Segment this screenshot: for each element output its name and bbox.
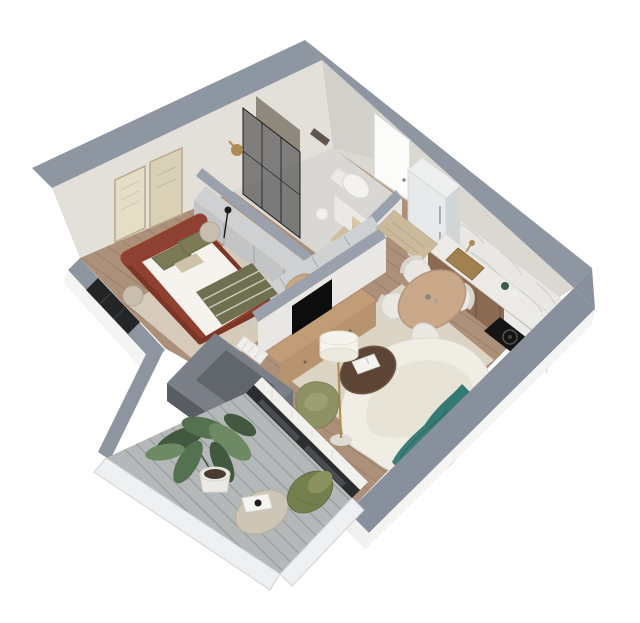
bottle-white	[511, 290, 517, 296]
door-handle	[402, 178, 406, 182]
bottle-green	[501, 282, 509, 290]
nightstand-right	[200, 222, 220, 242]
nightstand-left	[123, 286, 143, 306]
waste-bin	[316, 208, 328, 220]
cup	[255, 500, 262, 507]
art-frame-right	[150, 148, 182, 228]
art-frame-left	[115, 166, 145, 242]
floor-plan-render	[0, 0, 640, 623]
floor-plan-stage	[0, 0, 640, 623]
